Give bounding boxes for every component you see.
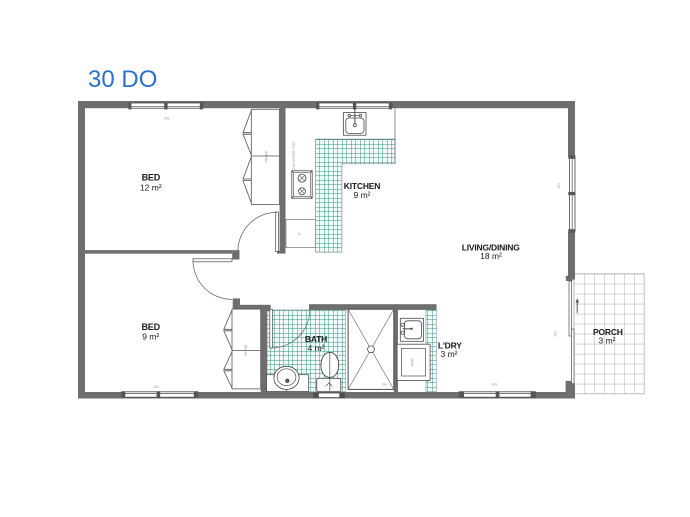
svg-text:ROBE: ROBE xyxy=(243,344,248,356)
svg-text:30 DO: 30 DO xyxy=(88,66,157,93)
svg-text:AS: AS xyxy=(153,384,159,389)
svg-text:W/M: W/M xyxy=(410,358,415,366)
svg-text:F: F xyxy=(297,232,302,235)
svg-text:AS: AS xyxy=(556,183,561,189)
svg-text:3 m²: 3 m² xyxy=(441,349,458,359)
svg-text:SH: SH xyxy=(382,383,387,387)
svg-text:18 m²: 18 m² xyxy=(480,251,502,261)
svg-text:ROBE: ROBE xyxy=(263,150,268,162)
svg-text:AS: AS xyxy=(164,115,170,120)
svg-text:SD: SD xyxy=(552,331,557,337)
svg-text:4 m²: 4 m² xyxy=(308,343,325,353)
svg-text:9 m²: 9 m² xyxy=(142,331,159,341)
svg-text:BED: BED xyxy=(142,173,161,183)
svg-text:12 m²: 12 m² xyxy=(140,182,162,192)
svg-text:COUNTER TOP: COUNTER TOP xyxy=(291,141,296,170)
svg-text:BED: BED xyxy=(141,322,160,332)
svg-text:9 m²: 9 m² xyxy=(354,190,371,200)
svg-text:AS: AS xyxy=(492,382,498,387)
svg-text:3 m²: 3 m² xyxy=(599,336,616,346)
